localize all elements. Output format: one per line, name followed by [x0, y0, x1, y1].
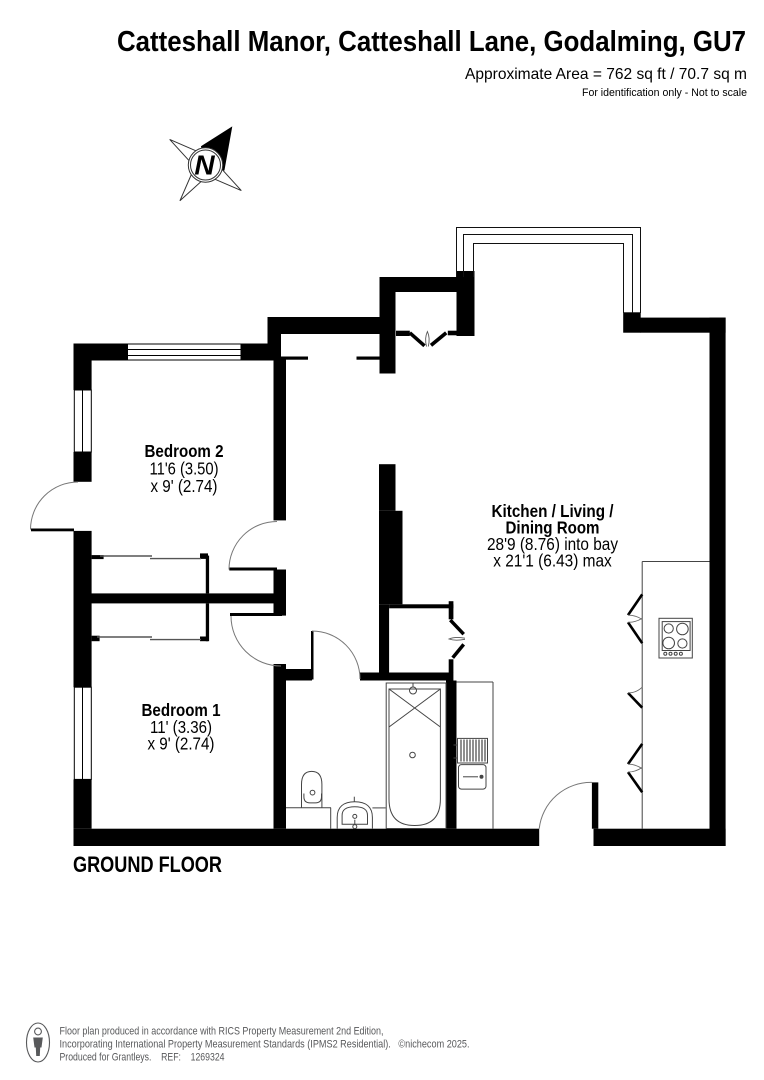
svg-text:Approximate Area = 762 sq ft /: Approximate Area = 762 sq ft / 70.7 sq m [465, 66, 747, 83]
svg-text:x 9' (2.74): x 9' (2.74) [148, 733, 215, 753]
svg-text:Catteshall Manor, Catteshall L: Catteshall Manor, Catteshall Lane, Godal… [117, 26, 746, 58]
svg-text:x 21'1 (6.43) max: x 21'1 (6.43) max [493, 551, 612, 571]
svg-text:N: N [194, 150, 215, 181]
svg-text:Incorporating International Pr: Incorporating International Property Mea… [60, 1039, 470, 1051]
svg-text:For identification only - Not: For identification only - Not to scale [582, 87, 747, 99]
svg-text:x 9' (2.74): x 9' (2.74) [151, 476, 218, 496]
svg-text:Floor plan produced in accorda: Floor plan produced in accordance with R… [60, 1026, 384, 1038]
svg-text:GROUND FLOOR: GROUND FLOOR [73, 852, 222, 877]
svg-text:Produced for Grantleys. REF: Produced for Grantleys. REF: 1269324 [60, 1052, 225, 1064]
